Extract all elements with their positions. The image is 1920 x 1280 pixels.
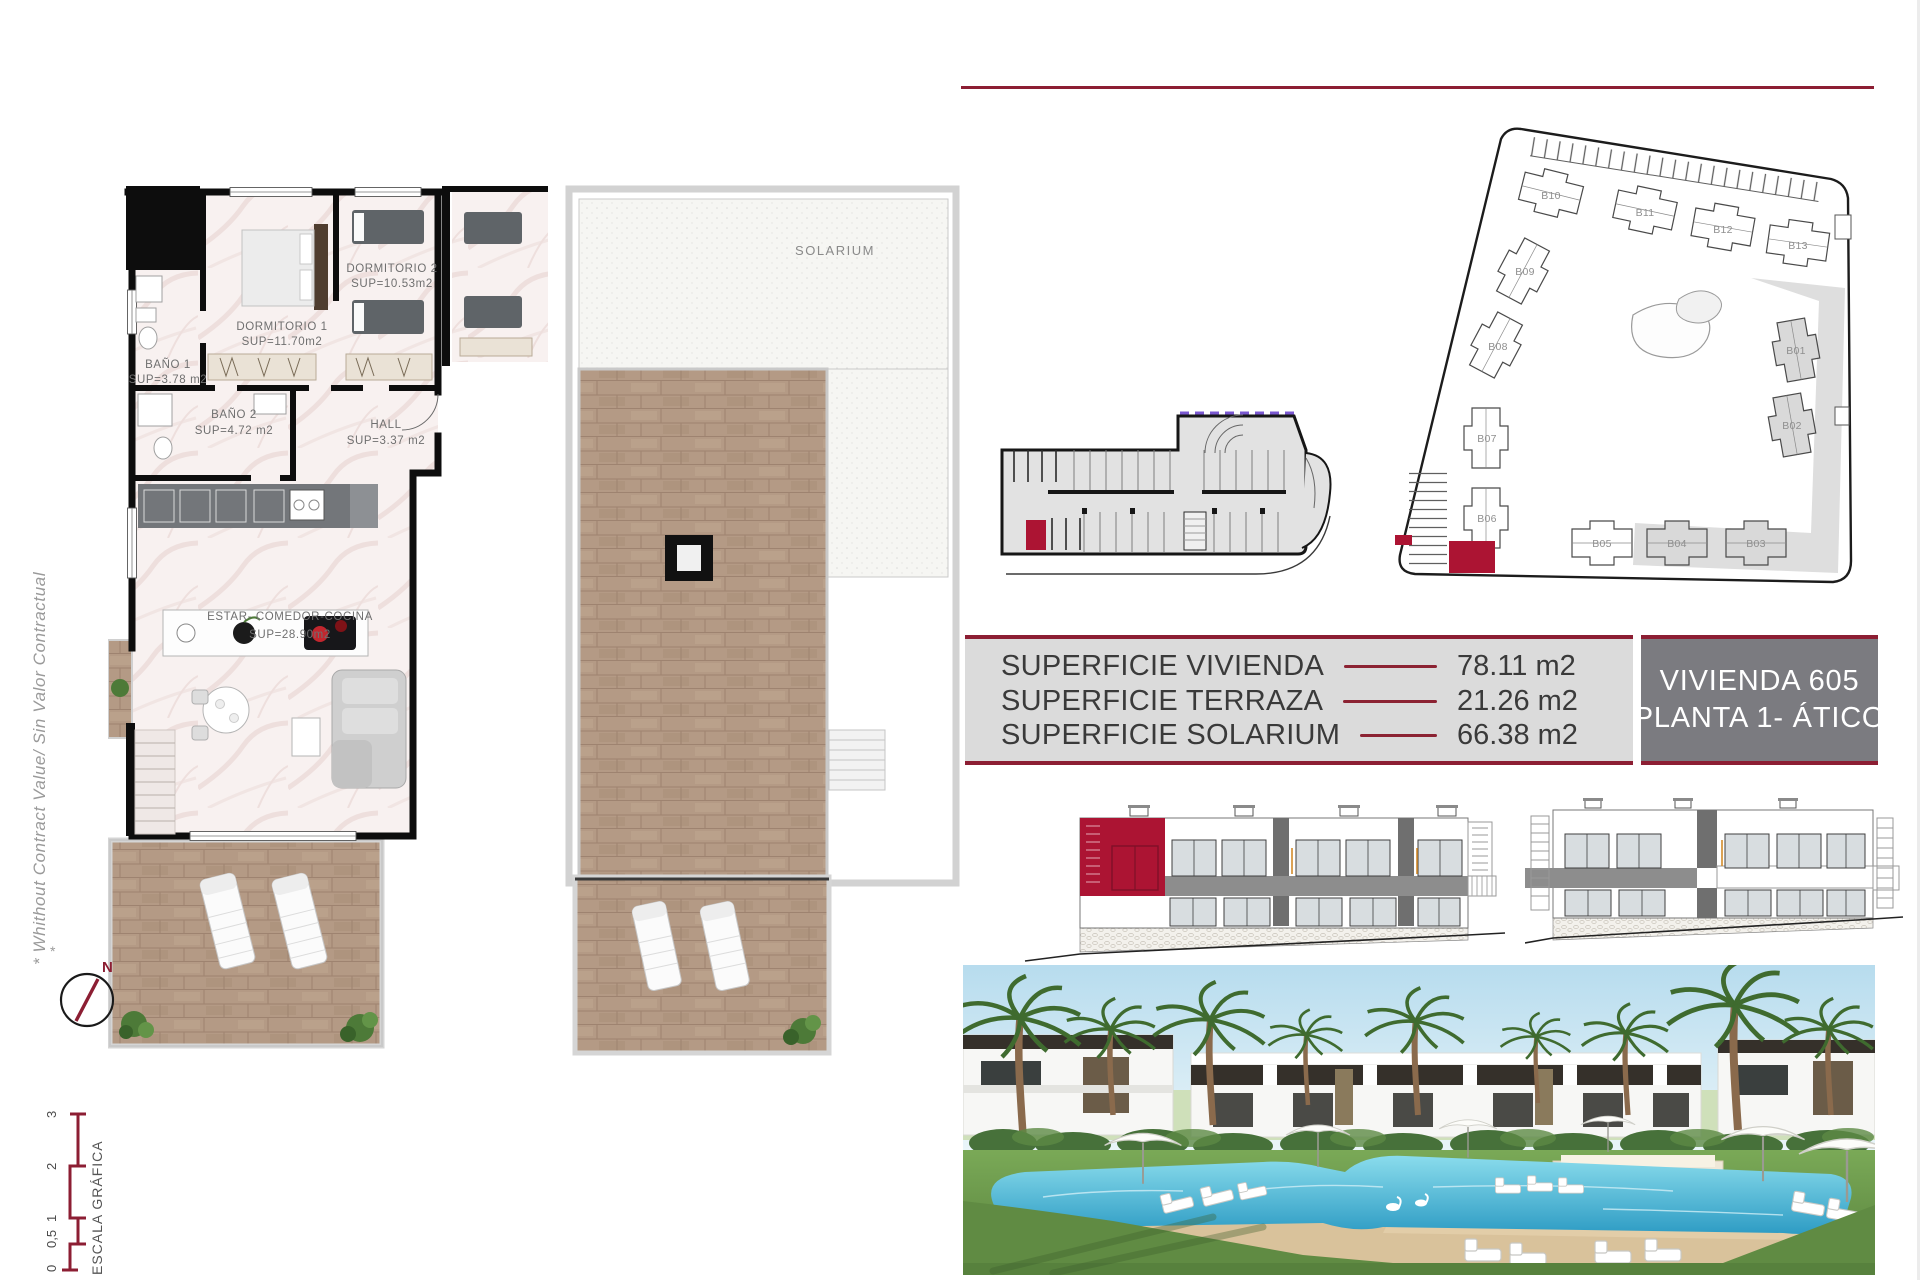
highlighted-storeroom [1026,520,1046,550]
table-row-terraza: SUPERFICIE TERRAZA 21.26 m2 [1001,684,1607,719]
block-label-b04: B04 [1667,538,1687,550]
room-sup-dormitorio-2: SUP=10.53m2 [351,278,433,290]
table-row-vivienda: SUPERFICIE VIVIENDA 78.11 m2 [1001,649,1607,684]
scale-label: ESCALA GRÁFICA [89,1140,105,1275]
room-label-bano-2: BAÑO 2 [211,408,257,421]
solarium-floor-plan: SOLARIUM [565,185,960,1060]
surface-value: 21.26 m2 [1457,685,1607,718]
apartment-floor-plan: DORMITORIO 1 SUP=11.70m2 DORMITORIO 2 SU… [108,178,553,1063]
surface-label: SUPERFICIE VIVIENDA [1001,650,1324,683]
surface-label: SUPERFICIE TERRAZA [1001,685,1323,718]
scale-tick-0: 0 [44,1265,59,1272]
block-label-b05: B05 [1592,538,1612,550]
footnote-star: * [50,943,56,959]
elevation-right [1525,788,1905,958]
block-label-b12: B12 [1713,224,1733,236]
surface-label: SUPERFICIE SOLARIUM [1001,719,1340,752]
elevation-left [1020,788,1510,973]
leader-line [1343,700,1437,703]
north-compass-icon: * N [40,942,135,1042]
scale-tick-3: 3 [44,1111,59,1118]
disclaimer-vertical-text: * Whithout Contract Value/ Sin Valor Con… [30,545,56,965]
block-label-b03: B03 [1746,538,1766,550]
block-label-b01: B01 [1786,345,1806,357]
scale-ticks: 0 0,5 1 2 3 [44,1111,59,1272]
room-sup-estar: SUP=28.90m2 [249,629,331,641]
block-label-b11: B11 [1636,207,1655,219]
room-label-estar: ESTAR- COMEDOR-COCINA [207,611,373,623]
highlighted-elevation-unit [1080,818,1165,896]
block-label-b06: B06 [1477,513,1497,525]
unit-badge: VIVIENDA 605 PLANTA 1- ÁTICO [1641,635,1878,765]
brochure-sheet: * Whithout Contract Value/ Sin Valor Con… [0,0,1920,1280]
block-label-b09: B09 [1515,266,1535,278]
unit-floor: PLANTA 1- ÁTICO [1634,702,1886,735]
room-sup-bano-2: SUP=4.72 m2 [195,425,274,437]
surface-value: 78.11 m2 [1457,650,1607,683]
surface-summary-table: SUPERFICIE VIVIENDA 78.11 m2 SUPERFICIE … [965,635,1633,765]
top-rule [961,86,1874,89]
leader-line [1360,734,1437,737]
garage-location-plan [988,398,1340,598]
room-sup-dormitorio-1: SUP=11.70m2 [242,336,323,348]
highlighted-unit [1449,541,1495,573]
block-label-b10: B10 [1541,190,1561,202]
surface-value: 66.38 m2 [1457,719,1607,752]
scale-tick-1: 1 [44,1215,59,1222]
scale-tick-05: 0,5 [44,1230,59,1248]
block-label-b07: B07 [1477,433,1497,445]
scale-bar: 0 0,5 1 2 3 ESCALA GRÁFICA [30,1090,115,1280]
north-label: N [102,959,113,976]
solarium-label: SOLARIUM [795,243,875,258]
table-row-solarium: SUPERFICIE SOLARIUM 66.38 m2 [1001,718,1607,753]
room-label-hall: HALL [370,419,401,431]
unit-number: VIVIENDA 605 [1660,665,1860,698]
scale-tick-2: 2 [44,1163,59,1170]
room-label-dormitorio-2: DORMITORIO 2 [346,263,437,275]
block-label-b13: B13 [1788,240,1808,252]
room-sup-bano-1: SUP=3.78 m2 [129,374,208,386]
highlighted-parking [1395,535,1412,545]
room-label-bano-1: BAÑO 1 [145,358,191,371]
leader-line [1344,665,1437,668]
pool-render-photo [963,965,1875,1275]
block-label-b02: B02 [1782,420,1802,432]
room-sup-hall: SUP=3.37 m2 [347,435,426,447]
site-location-plan: B10 B11 B12 B13 B09 B08 B07 B06 B05 B04 … [1383,103,1903,618]
block-label-b08: B08 [1488,341,1508,353]
room-label-dormitorio-1: DORMITORIO 1 [236,321,327,333]
